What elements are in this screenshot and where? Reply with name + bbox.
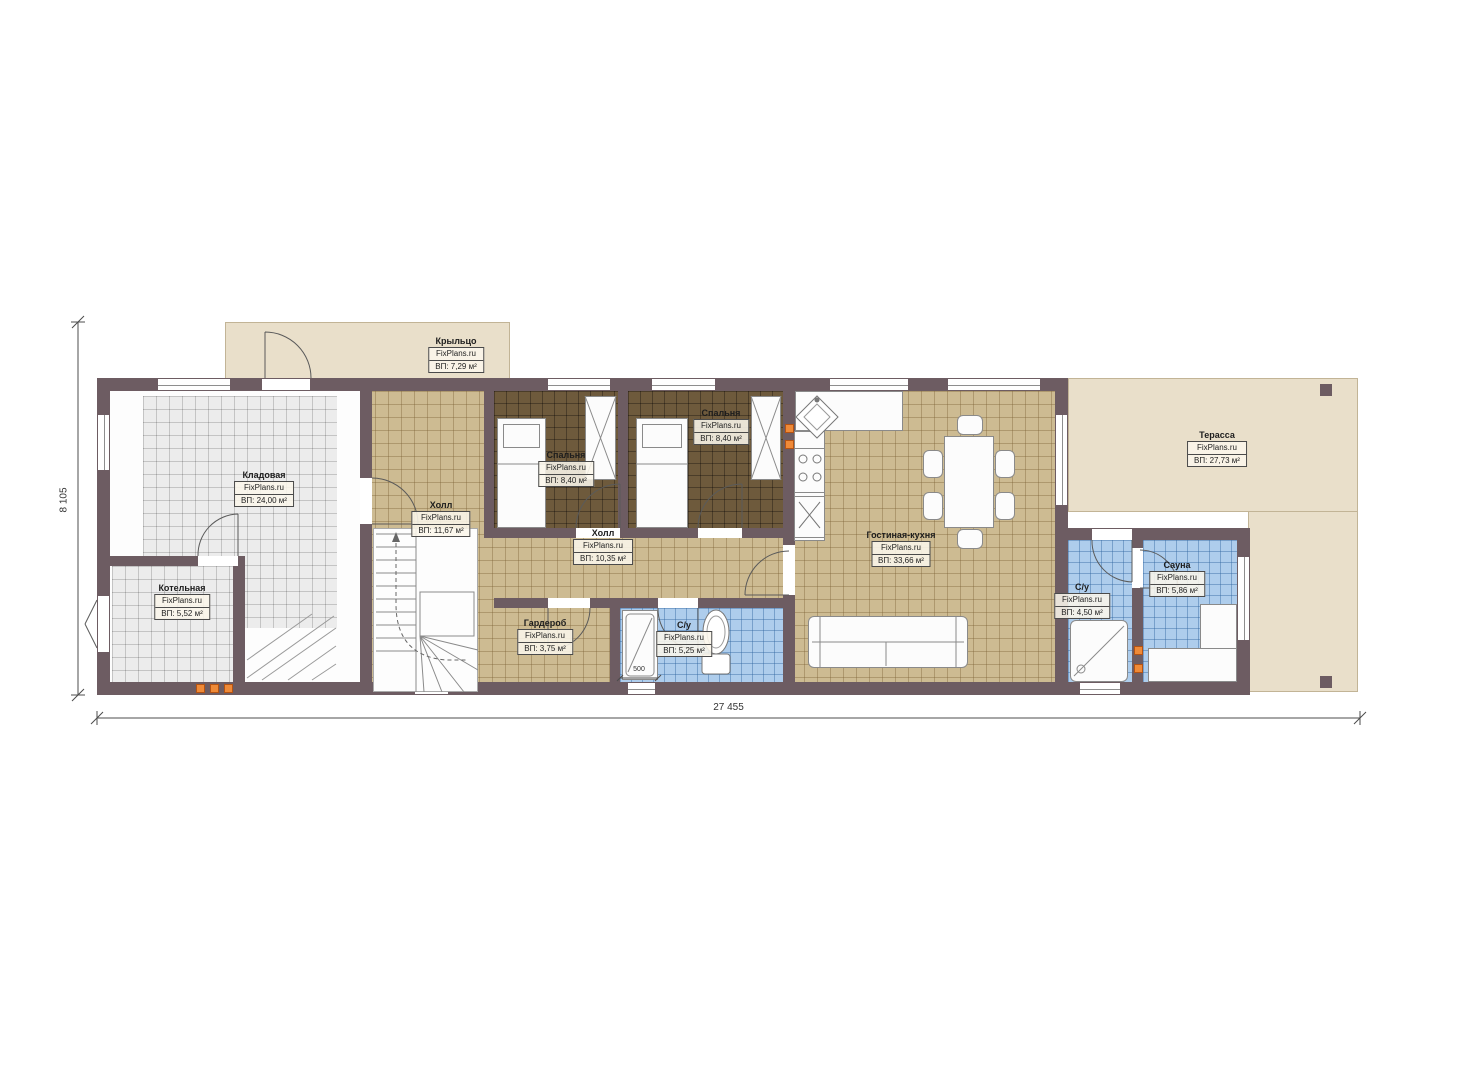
room-name: Холл <box>411 500 470 510</box>
room-brand: FixPlans.ru <box>518 630 572 642</box>
room-brand: FixPlans.ru <box>1188 442 1246 454</box>
room-area: ВП: 5,52 м² <box>155 608 209 619</box>
room-area: ВП: 5,86 м² <box>1150 585 1204 596</box>
room-name: Крыльцо <box>428 336 484 346</box>
room-area: ВП: 8,40 м² <box>694 433 748 444</box>
room-name: Спальня <box>538 450 594 460</box>
room-brand: FixPlans.ru <box>694 420 748 432</box>
room-brand: FixPlans.ru <box>574 540 632 552</box>
room-name: Сауна <box>1149 560 1205 570</box>
room-label-storage: Кладовая FixPlans.ru ВП: 24,00 м² <box>234 470 294 508</box>
room-name: Спальня <box>693 408 749 418</box>
cabinet-cross-icon <box>585 396 781 480</box>
vent-marker <box>196 684 205 693</box>
room-label-living-kitchen: Гостиная-кухня FixPlans.ru ВП: 33,66 м² <box>867 530 936 568</box>
room-area: ВП: 10,35 м² <box>574 553 632 564</box>
slope-hatch <box>247 614 336 680</box>
stair-walkline <box>392 532 468 660</box>
room-name: С/у <box>1054 582 1110 592</box>
room-brand: FixPlans.ru <box>1055 594 1109 606</box>
room-label-wardrobe: Гардероб FixPlans.ru ВП: 3,75 м² <box>517 618 573 656</box>
vent-marker <box>1134 664 1143 673</box>
room-name: Котельная <box>154 583 210 593</box>
room-label-terrace: Терасса FixPlans.ru ВП: 27,73 м² <box>1187 430 1247 468</box>
room-brand: FixPlans.ru <box>539 462 593 474</box>
room-name: С/у <box>656 620 712 630</box>
room-brand: FixPlans.ru <box>155 595 209 607</box>
room-brand: FixPlans.ru <box>872 542 930 554</box>
floor-plan-canvas: Крыльцо FixPlans.ru ВП: 7,29 м² Кладовая… <box>0 0 1474 1080</box>
room-brand: FixPlans.ru <box>412 512 469 524</box>
room-area: ВП: 8,40 м² <box>539 475 593 486</box>
room-area: ВП: 11,67 м² <box>412 525 469 536</box>
room-area: ВП: 5,25 м² <box>657 645 711 656</box>
room-label-hall-1: Холл FixPlans.ru ВП: 11,67 м² <box>411 500 470 538</box>
room-label-hall-2: Холл FixPlans.ru ВП: 10,35 м² <box>573 528 633 566</box>
room-name: Кладовая <box>234 470 294 480</box>
room-area: ВП: 7,29 м² <box>429 361 483 372</box>
vent-marker <box>224 684 233 693</box>
room-area: ВП: 24,00 м² <box>235 495 293 506</box>
room-name: Гостиная-кухня <box>867 530 936 540</box>
room-name: Гардероб <box>517 618 573 628</box>
dimension-width: 27 455 <box>97 702 1360 713</box>
room-label-bath-2: С/у FixPlans.ru ВП: 4,50 м² <box>1054 582 1110 620</box>
vent-marker <box>785 424 794 433</box>
plan-linework <box>0 0 1474 1080</box>
dimension-height: 8 105 <box>59 487 70 512</box>
room-name: Терасса <box>1187 430 1247 440</box>
dimension-door: 500 <box>633 666 645 673</box>
room-brand: FixPlans.ru <box>1150 572 1204 584</box>
room-label-bath-1: С/у FixPlans.ru ВП: 5,25 м² <box>656 620 712 658</box>
room-name: Холл <box>573 528 633 538</box>
room-brand: FixPlans.ru <box>429 348 483 360</box>
room-brand: FixPlans.ru <box>235 482 293 494</box>
room-label-porch: Крыльцо FixPlans.ru ВП: 7,29 м² <box>428 336 484 374</box>
room-area: ВП: 4,50 м² <box>1055 607 1109 618</box>
sofa-lines <box>812 616 964 668</box>
vent-marker <box>210 684 219 693</box>
vent-marker <box>785 440 794 449</box>
room-label-sauna: Сауна FixPlans.ru ВП: 5,86 м² <box>1149 560 1205 598</box>
stove-burners-icon <box>799 455 821 528</box>
room-label-bedroom-2: Спальня FixPlans.ru ВП: 8,40 м² <box>693 408 749 446</box>
room-area: ВП: 3,75 м² <box>518 643 572 654</box>
stair-treads <box>376 528 478 692</box>
room-brand: FixPlans.ru <box>657 632 711 644</box>
room-area: ВП: 33,66 м² <box>872 555 930 566</box>
room-label-bedroom-1: Спальня FixPlans.ru ВП: 8,40 м² <box>538 450 594 488</box>
room-label-boiler: Котельная FixPlans.ru ВП: 5,52 м² <box>154 583 210 621</box>
vent-marker <box>1134 646 1143 655</box>
room-area: ВП: 27,73 м² <box>1188 455 1246 466</box>
kitchen-sink-icon <box>796 396 838 438</box>
